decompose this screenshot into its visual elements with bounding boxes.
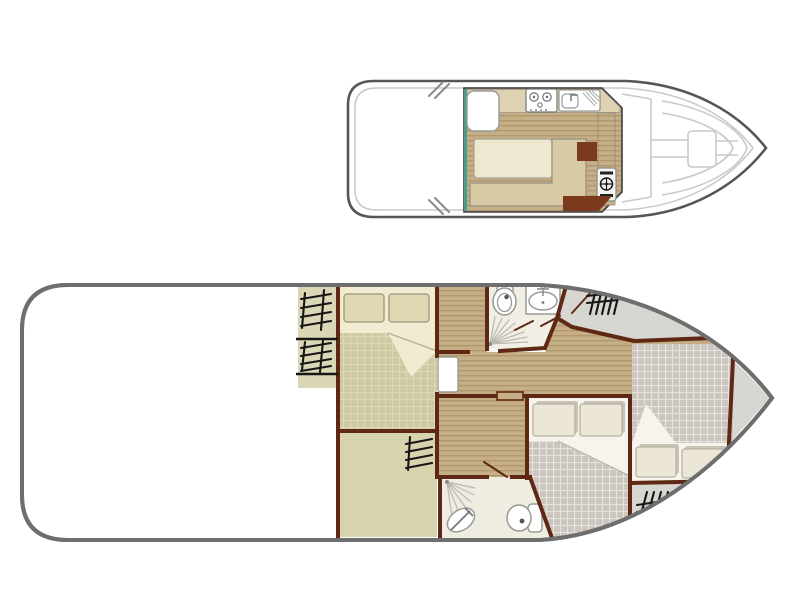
aft-cabin-door xyxy=(438,357,458,392)
lower-deck-plan xyxy=(22,285,772,540)
mid-bed-pillow-right xyxy=(580,404,622,436)
steering-wheel-icon xyxy=(601,178,613,190)
helm-cabinet-upper xyxy=(577,142,597,161)
boat-floorplan-page xyxy=(0,0,800,600)
stove-icon xyxy=(526,89,557,112)
lower-deck-interior xyxy=(296,285,769,540)
galley-sink-icon xyxy=(559,90,600,111)
aft-bed-pillow-left xyxy=(344,294,384,322)
fridge-unit xyxy=(467,91,499,131)
aft-bed-pillow-right xyxy=(389,294,429,322)
mid-bed-pillow-left xyxy=(533,404,575,436)
corridor-threshold-step xyxy=(497,392,523,400)
corridor-aft-strip xyxy=(439,396,527,477)
bow-bed-pillow-right xyxy=(682,449,724,478)
bow-bed-pillow-left xyxy=(636,447,676,477)
dinette-table xyxy=(474,139,552,178)
toilet-icon xyxy=(507,505,531,531)
upper-deck-plan xyxy=(348,81,766,217)
floorplan-canvas xyxy=(0,0,800,600)
